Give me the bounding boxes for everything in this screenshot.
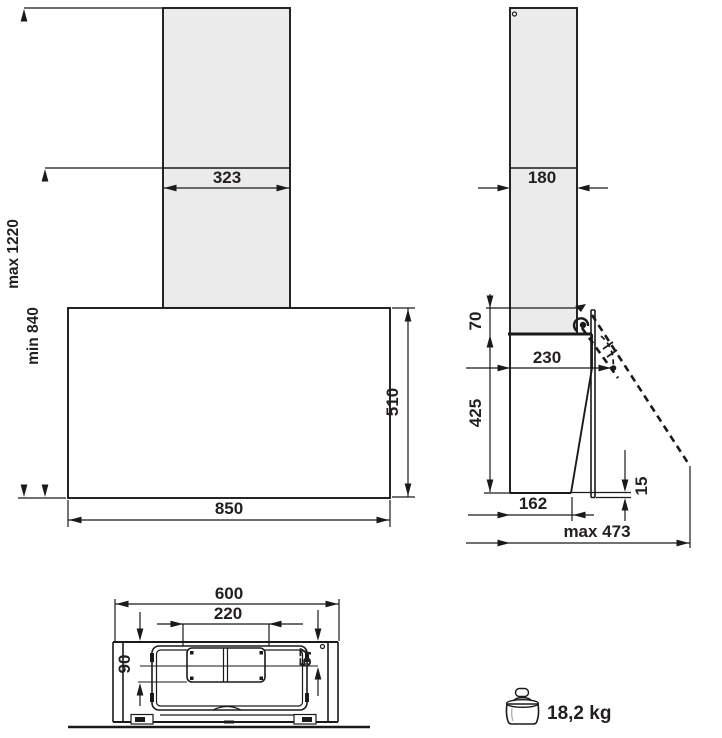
arrowhead — [405, 484, 412, 497]
arrowhead — [21, 485, 28, 498]
arrowhead — [487, 296, 494, 309]
screw-dot — [260, 677, 264, 681]
technical-drawing: max 1220 min 840 323 850 510 180 — [0, 0, 722, 738]
dim-hood-width: 850 — [215, 499, 243, 518]
dim-hinge-depth: 230 — [533, 348, 561, 367]
dim-duct-center-offset: 57 — [296, 648, 315, 667]
arrowhead — [487, 480, 494, 493]
arrowhead — [42, 169, 49, 182]
chimney-front — [163, 8, 290, 308]
screw-dot — [190, 651, 194, 655]
dim-chimney-depth: 180 — [528, 168, 556, 187]
arrowhead — [498, 185, 511, 192]
screw-dot — [190, 677, 194, 681]
arrowhead — [42, 485, 49, 498]
arrowhead — [487, 335, 494, 348]
weight-shading — [512, 708, 513, 721]
dim-duct-width: 220 — [214, 604, 242, 623]
open-panel-dashed — [592, 315, 688, 463]
bottom-view: 600 220 90 57 — [68, 584, 370, 727]
hinge-pivot — [580, 322, 586, 328]
glass-front-panel — [591, 310, 595, 498]
arrowhead — [377, 517, 390, 524]
arrowhead — [498, 512, 511, 519]
weight-value: 18,2 kg — [547, 703, 611, 724]
arrowhead — [577, 185, 590, 192]
weight-icon — [506, 689, 538, 725]
extension-line — [571, 493, 631, 498]
front-view: max 1220 min 840 323 850 510 — [5, 8, 415, 527]
dim-duct-rear-offset: 90 — [115, 655, 134, 674]
screw-dot — [260, 651, 264, 655]
arrowhead — [315, 667, 322, 680]
arrowhead — [498, 365, 511, 372]
arrowhead — [677, 540, 690, 547]
clip-mark — [305, 693, 309, 702]
clip-mark — [150, 653, 154, 662]
weight-spec: 18,2 kg — [506, 689, 611, 725]
arrowhead — [326, 601, 339, 608]
side-view: 180 70 425 230 162 — [466, 8, 690, 548]
arrowhead — [137, 683, 144, 696]
weight-knob — [516, 689, 529, 697]
dim-mount-height-max: max 1220 — [5, 219, 22, 289]
arrowhead — [622, 480, 629, 493]
dim-mount-height-min: min 840 — [25, 307, 42, 365]
duct-outlet — [187, 648, 265, 682]
screw-hole — [321, 645, 325, 649]
dim-bottom-depth: 162 — [519, 494, 547, 513]
dim-top-overlap: 70 — [466, 312, 485, 331]
arrowhead — [269, 621, 282, 628]
arrowhead — [137, 629, 144, 642]
arrowhead — [21, 9, 28, 22]
dim-hood-height: 510 — [383, 388, 402, 416]
mounting-clip-detail — [135, 717, 145, 722]
dim-body-width: 600 — [215, 584, 243, 603]
arrowhead — [599, 365, 612, 372]
center-mark — [224, 721, 234, 724]
clip-mark — [150, 693, 154, 702]
installation-diagram: max 1220 min 840 323 850 510 180 — [0, 0, 722, 738]
arrowhead — [69, 517, 82, 524]
dim-body-height: 425 — [466, 399, 485, 427]
hood-body-front — [68, 308, 390, 498]
arrowhead — [498, 540, 511, 547]
arrowhead — [405, 309, 412, 322]
arrowhead — [315, 629, 322, 642]
arrowhead — [622, 498, 629, 511]
dim-panel-bottom-offset: 15 — [632, 477, 651, 496]
arrowhead — [171, 621, 184, 628]
dim-open-depth-max: max 473 — [563, 522, 630, 541]
dim-chimney-width: 323 — [213, 168, 241, 187]
arrowhead — [116, 601, 129, 608]
mounting-clip-detail — [302, 717, 312, 722]
screw-hole — [513, 12, 517, 16]
arrowhead — [573, 512, 586, 519]
pivot-point — [611, 365, 617, 371]
